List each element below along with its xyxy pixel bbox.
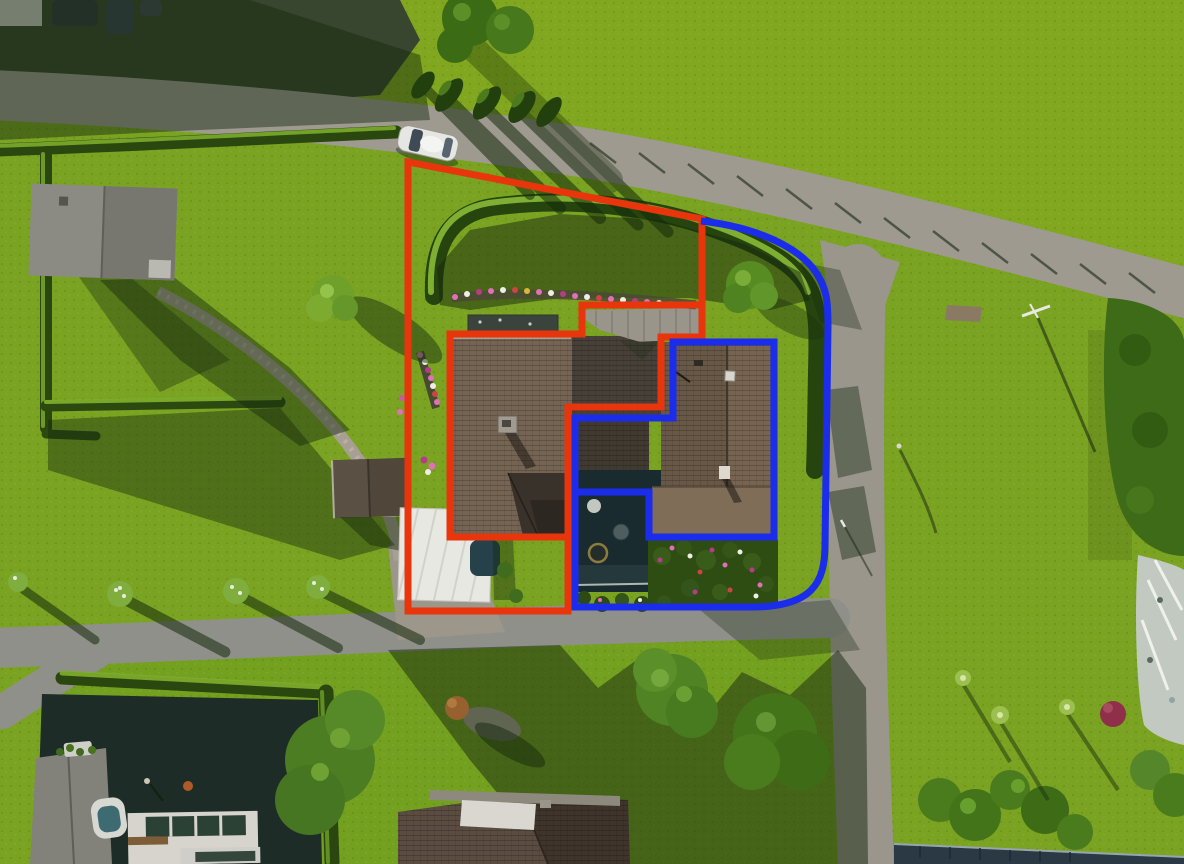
- right-house-roof: [650, 342, 774, 538]
- small-shed-roof: [332, 458, 408, 519]
- aerial-scene: [0, 0, 1184, 864]
- aerial-photo: [0, 0, 1184, 864]
- roof-vent: [725, 371, 736, 382]
- roof-vent-2: [719, 466, 730, 479]
- modern-house-roof: [128, 811, 261, 864]
- patio-table: [587, 499, 601, 513]
- fire-bowl: [589, 544, 607, 562]
- orange-pot: [183, 781, 193, 791]
- left-house-roof: [449, 337, 572, 540]
- planter: [613, 524, 629, 540]
- bottom-left-property: [30, 694, 322, 864]
- garage-roof: [28, 183, 177, 280]
- red-shrub: [1100, 701, 1126, 727]
- utility-pad: [945, 305, 982, 322]
- rocky-stream: [1136, 555, 1184, 745]
